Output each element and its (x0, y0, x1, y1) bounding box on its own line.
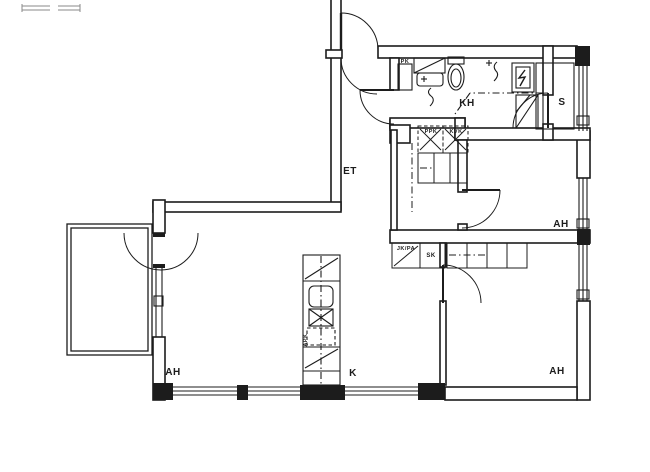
neighbor-structure-marks (22, 4, 80, 12)
wall-junction-blocks (153, 46, 590, 400)
label-sk: SK (426, 253, 436, 259)
sauna-fixtures (512, 63, 574, 129)
label-jk-pa: JK/PA (397, 246, 415, 252)
label-ppk: PPK (425, 129, 438, 135)
sauna-heater-icon (512, 63, 534, 92)
balcony (67, 224, 152, 355)
label-pk: PK (401, 59, 410, 65)
drain-squiggle (429, 88, 434, 106)
entry-door (341, 13, 378, 94)
wardrobe-row (447, 243, 527, 268)
room-label-ah-left: AH (165, 367, 180, 378)
room-label-kh: KH (459, 98, 474, 109)
kitchen-island (303, 255, 340, 385)
room-label-ah-lower: AH (549, 366, 564, 377)
drain-squiggle (494, 62, 498, 81)
toilet (448, 57, 464, 90)
room-label-ah-upper: AH (553, 219, 568, 230)
walls (153, 0, 590, 400)
room-label-et: ET (343, 166, 357, 177)
room-label-kitchen: K (349, 368, 357, 379)
lower-room-door (443, 265, 481, 303)
windows (154, 63, 589, 395)
upper-room-door (462, 190, 500, 228)
room-label-sauna: S (558, 97, 565, 108)
label-kvk: KVK (449, 129, 462, 135)
floor-plan-svg: ET KH S AH AH AH K SK JK/PA PPK KVK PK A… (0, 0, 650, 472)
floor-plan-page: ET KH S AH AH AH K SK JK/PA PPK KVK PK A… (0, 0, 650, 472)
washer-cabinet (398, 64, 412, 90)
bathroom-door (360, 90, 394, 124)
label-apk: APK (303, 333, 309, 346)
sink-vanity (414, 58, 445, 106)
